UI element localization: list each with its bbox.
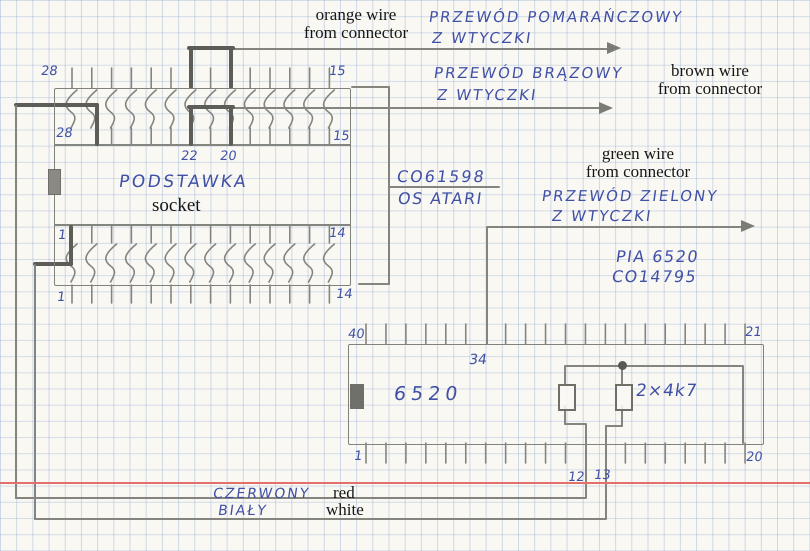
resistor-1 [558,384,576,411]
chip-id-part-number: CO61598 [396,167,487,186]
pia-pin40-label: 40 [347,327,366,342]
pia-pin34-label: 34 [468,352,488,368]
socket-right-stub-bottom [358,283,390,285]
pia-pin20-label: 20 [745,450,764,465]
white-wire-bottom-h [34,518,606,520]
green-wire-v [486,227,488,345]
schematic-page: orange wire from connector brown wire fr… [0,0,810,551]
socket-pin14-row3-label: 14 [328,226,347,241]
green-wire-h [486,226,744,228]
orange-jumper-right-pin [229,48,233,89]
socket-pin22-label: 22 [180,149,199,164]
green-wire-label-pl-line2: Z WTYCZKI [551,207,654,225]
orange-wire-caption-line2: from connector [288,24,424,42]
socket-right-stub-top [351,86,390,88]
brown-wire-label-pl-line2: Z WTYCZKI [436,86,539,104]
chip-notch [350,384,364,409]
chip-id-underline [388,186,500,188]
orange-wire-caption: orange wire from connector [288,6,424,43]
brown-wire-label-pl-line1: PRZEWÓD BRĄZOWY [433,64,625,82]
socket-notch [48,169,61,195]
red-wire-label-pl: CZERWONY [212,486,312,502]
socket-pin14-bottom-label: 14 [335,287,354,302]
orange-jumper-left-pin [189,48,193,89]
orange-wire-label-pl-line1: PRZEWÓD POMARAŃCZOWY [428,8,685,26]
green-wire-caption: green wire from connector [570,145,706,182]
red-wire-left-v [15,105,17,499]
pia-chip-label: 6520 [392,383,463,405]
paper-margin-line [0,482,810,484]
chip-id-platform: OS ATARI [397,189,485,208]
orange-wire-arrowhead-icon [607,42,621,54]
brown-wire-arrowhead-icon [599,102,613,114]
green-wire-caption-line1: green wire [570,145,706,163]
socket-pin15-row2-label: 15 [332,129,351,144]
socket-caption-en: socket [152,196,201,217]
green-wire-label-pl-line1: PRZEWÓD ZIELONY [541,187,720,205]
orange-jumper-top [187,46,235,50]
brown-wire-caption: brown wire from connector [642,62,778,99]
pia-pin12-label: 12 [567,470,586,485]
brown-wire-caption-line2: from connector [642,80,778,98]
socket-name-pl: PODSTAWKA [118,172,250,192]
pia-pin21-label: 21 [744,325,763,340]
orange-wire-line [193,48,610,50]
brown-wire-caption-line1: brown wire [642,62,778,80]
socket-pin28-top-label: 28 [40,64,59,79]
green-wire-arrowhead-icon [741,220,755,232]
resistor-2 [615,384,633,411]
socket-pin28-row2-label: 28 [55,126,74,141]
pia-title: PIA 6520 [615,247,701,266]
junction-dot [618,361,627,370]
orange-wire-label-pl-line2: Z WTYCZKI [431,29,534,47]
green-wire-caption-line2: from connector [570,163,706,181]
pia-pin13-label: 13 [593,468,612,483]
socket-pin20-label: 20 [219,149,238,164]
socket-pin15-top-label: 15 [328,64,347,79]
resistor-value-label: 2×4k7 [635,381,699,401]
white-wire-caption-en: white [326,501,364,519]
orange-wire-caption-line1: orange wire [288,6,424,24]
pia-part-number: CO14795 [611,267,699,286]
white-wire-label-pl: BIAŁY [217,503,269,519]
